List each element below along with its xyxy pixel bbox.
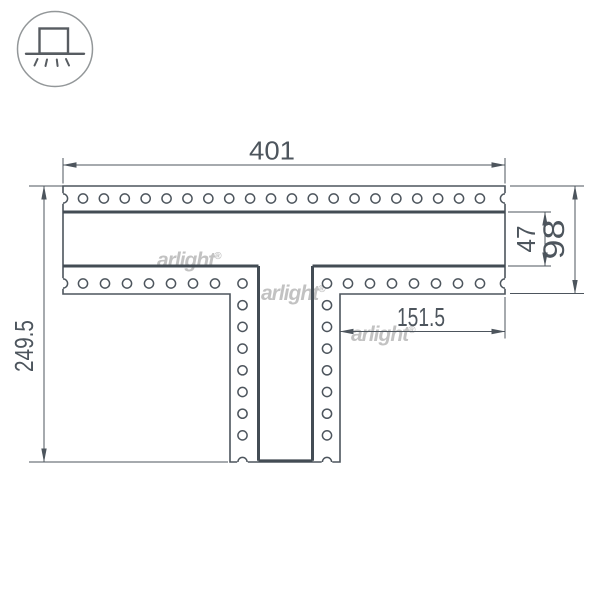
perforation-hole — [238, 322, 247, 331]
perforation-hole — [162, 194, 171, 203]
perforation-hole — [225, 194, 234, 203]
perforation-hole — [122, 279, 131, 288]
dim-height-total-value: 249.5 — [9, 320, 39, 372]
perforation-hole — [413, 194, 422, 203]
drawing-canvas: arlight® arlight® arlight® — [0, 0, 600, 599]
perforation-hole — [322, 409, 331, 418]
perforation-hole — [431, 279, 440, 288]
perforation-hole — [141, 194, 150, 203]
perforation-hole — [246, 194, 255, 203]
perforation-hole — [238, 409, 247, 418]
perforation-hole — [100, 279, 109, 288]
brand-watermark: arlight® — [157, 249, 222, 272]
perforation-hole — [144, 279, 153, 288]
perforation-hole — [188, 279, 197, 288]
perforation-hole — [475, 194, 484, 203]
perforation-hole — [329, 194, 338, 203]
perforation-hole — [475, 279, 484, 288]
perforation-hole — [78, 194, 87, 203]
dim-channel-width-value: 47 — [511, 226, 541, 253]
mounting-type-icon — [18, 12, 93, 87]
fixture-box — [40, 29, 69, 54]
perforation-hole — [183, 194, 192, 203]
light-rays — [35, 59, 70, 66]
channel-lines — [63, 212, 505, 461]
perforation-hole — [322, 301, 331, 310]
perforation-hole — [392, 194, 401, 203]
perforation-hole — [238, 431, 247, 440]
perforation-hole — [166, 279, 175, 288]
perforation-hole — [78, 279, 87, 288]
perforation-hole — [238, 344, 247, 353]
perforation-hole — [204, 194, 213, 203]
dim-flange-width-value: 98 — [538, 220, 571, 260]
brand-watermark: arlight® — [261, 282, 326, 305]
perforation-hole — [287, 194, 296, 203]
technical-drawing: arlight® arlight® arlight® — [0, 0, 600, 599]
dim-height-total: 249.5 — [9, 186, 228, 462]
perforation-hole — [343, 279, 352, 288]
icon-ring — [18, 12, 93, 87]
dim-width-total: 401 — [63, 136, 505, 184]
perforation-hole — [99, 194, 108, 203]
perforation-hole — [371, 194, 380, 203]
perforation-hole — [120, 194, 129, 203]
perforation-hole — [266, 194, 275, 203]
perforation-hole — [454, 194, 463, 203]
recessed-light-icon — [26, 29, 84, 67]
perforation-hole — [434, 194, 443, 203]
dim-width-total-value: 401 — [249, 136, 295, 166]
perforation-hole — [238, 301, 247, 310]
perforation-hole — [387, 279, 396, 288]
perforation-hole — [238, 279, 247, 288]
perforation-hole — [308, 194, 317, 203]
perforation-hole — [409, 279, 418, 288]
perforation-hole — [322, 431, 331, 440]
dim-right-flange-length-value: 151.5 — [397, 302, 445, 332]
perforation-hole — [322, 279, 331, 288]
perforation-hole — [322, 322, 331, 331]
perforation-hole — [365, 279, 374, 288]
perforation-hole — [210, 279, 219, 288]
perforation-hole — [350, 194, 359, 203]
extension-lines — [29, 186, 228, 462]
perforation-hole — [238, 366, 247, 375]
perforation-hole — [453, 279, 462, 288]
perforation-hole — [322, 344, 331, 353]
perforation-hole — [322, 387, 331, 396]
perforation-hole — [322, 366, 331, 375]
perforation-hole — [238, 387, 247, 396]
